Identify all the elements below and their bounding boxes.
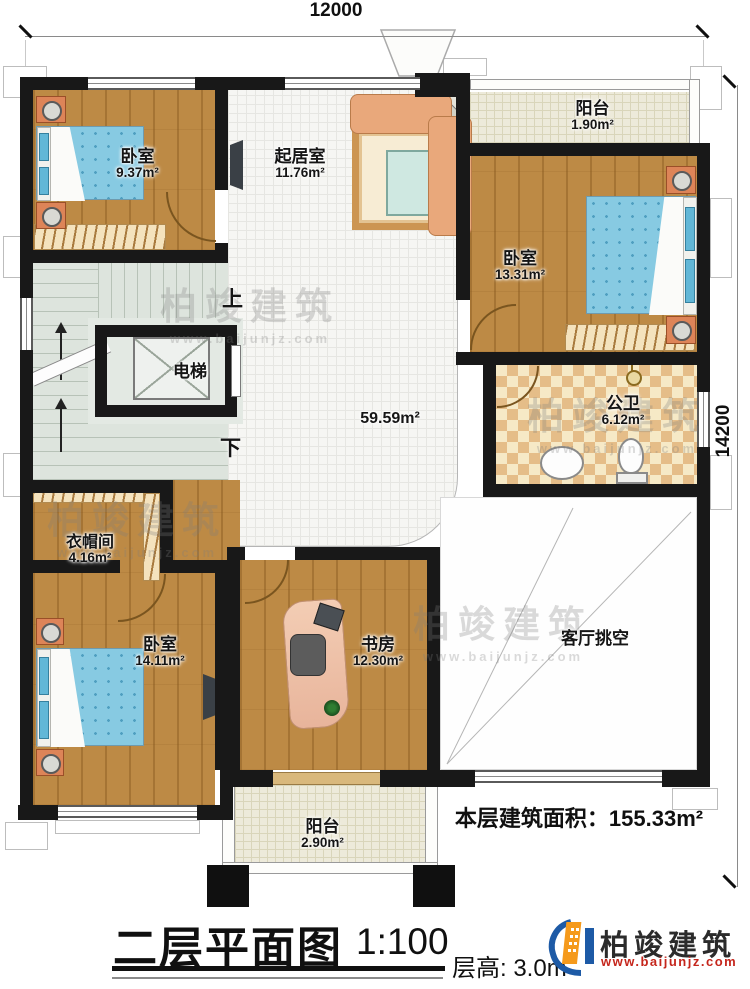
wall-segment [20, 250, 228, 263]
wall-segment [456, 352, 710, 365]
wall-segment [470, 143, 710, 156]
sink-icon [540, 446, 584, 480]
elevator-door-icon [231, 345, 241, 397]
floor-plan-canvas: 12000 14200 [0, 0, 750, 989]
column [413, 865, 455, 907]
wall-segment [456, 77, 470, 300]
window [697, 392, 710, 447]
balcony-door-threshold [273, 772, 380, 785]
tv-icon [230, 140, 243, 190]
window [58, 805, 197, 818]
wall-segment [95, 405, 237, 417]
wall-segment [95, 325, 107, 417]
balcony-railing [222, 862, 438, 874]
wall-segment [483, 365, 496, 497]
window-sill [55, 820, 200, 834]
right-dimension-label: 14200 [713, 391, 735, 471]
toilet-icon [616, 438, 648, 486]
room-label-balcony-top: 阳台 1.90m² [545, 100, 640, 133]
dimension-tick [722, 874, 736, 888]
window-sill [5, 822, 48, 850]
stair-arrow-up-icon [55, 398, 67, 409]
wall-segment [427, 547, 440, 770]
stairs-up-label: 上 [222, 283, 243, 313]
ceiling-light-icon [626, 370, 642, 386]
room-label-bedroom-topleft: 卧室 9.37m² [90, 148, 185, 181]
wall-segment [20, 480, 173, 493]
right-dimension-line [737, 85, 738, 887]
wall-segment [215, 573, 240, 770]
wall-segment [697, 447, 710, 787]
balcony-railing [470, 79, 700, 90]
wall-segment [20, 90, 33, 298]
plant-icon [324, 700, 340, 716]
wall-segment [380, 770, 475, 787]
stair-arrow-up-icon [55, 322, 67, 333]
room-label-living: 起居室 11.76m² [250, 148, 350, 181]
wall-segment [215, 90, 228, 190]
window [285, 77, 420, 90]
room-label-balcony-bottom: 阳台 2.90m² [275, 818, 370, 851]
coffee-table-icon [386, 150, 430, 216]
title-rule-thin [112, 977, 443, 979]
nightstand-lamp-icon [36, 202, 66, 229]
title-rule [112, 966, 445, 971]
wall-segment [697, 143, 710, 392]
dimension-tick [722, 74, 736, 88]
window [475, 770, 662, 783]
nightstand-lamp-icon [36, 618, 64, 645]
stair-direction-line [60, 408, 62, 452]
window [20, 298, 33, 350]
room-label-bedroom-bottomleft: 卧室 14.11m² [110, 636, 210, 669]
window-sill [710, 198, 732, 278]
room-label-study: 书房 12.30m² [328, 636, 428, 669]
balcony-railing [425, 783, 438, 868]
brand-logo-icon [545, 916, 597, 976]
nightstand-lamp-icon [666, 316, 696, 344]
wall-segment [227, 770, 273, 787]
wall-segment [227, 547, 245, 560]
floor-area-note: 本层建筑面积：155.33m² [448, 801, 710, 833]
office-chair-icon [290, 634, 326, 676]
wall-segment [20, 350, 33, 805]
wall-segment [295, 547, 440, 560]
room-label-bedroom-topright: 卧室 13.31m² [470, 250, 570, 283]
window [88, 77, 195, 90]
wall-segment [483, 484, 710, 497]
balcony-railing [689, 79, 700, 145]
room-label-void: 客厅挑空 [540, 630, 650, 648]
wall-segment [18, 805, 58, 820]
wall-segment [220, 770, 233, 820]
tv-icon [203, 674, 215, 720]
wall-segment [195, 77, 285, 90]
bed-icon [586, 196, 696, 314]
column [207, 865, 249, 907]
wall-segment [95, 325, 237, 337]
wall-segment [20, 77, 88, 90]
wardrobe-icon [143, 493, 160, 581]
nightstand-lamp-icon [666, 166, 696, 194]
brand-url: www.baijunjz.com [601, 954, 737, 969]
hall-area-label: 59.59m² [330, 410, 450, 427]
top-dimension-line [25, 36, 708, 37]
wall-segment [662, 770, 710, 787]
top-dimension-label: 12000 [300, 0, 372, 22]
nightstand-lamp-icon [36, 96, 66, 123]
stairs-down-label: 下 [220, 432, 241, 462]
staircase-upper-flight [98, 263, 228, 323]
wall-segment [160, 560, 240, 573]
room-label-bathroom: 公卫 6.12m² [578, 395, 668, 428]
room-label-cloakroom: 衣帽间 4.16m² [40, 534, 140, 566]
drawing-scale: 1:100 [356, 921, 449, 963]
nightstand-lamp-icon [36, 749, 64, 776]
room-label-elevator: 电梯 [150, 363, 230, 381]
